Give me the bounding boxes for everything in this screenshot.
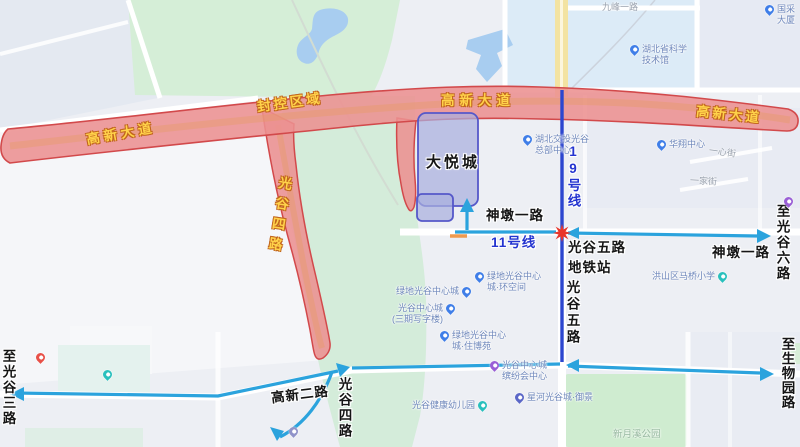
poi-label: 国采大厦 <box>777 4 800 27</box>
poi-maqiao-primary-school[interactable]: 洪山区马桥小学 <box>652 271 727 282</box>
poi-jiaotou-hq[interactable]: 湖北交投光谷 总部中心 <box>523 134 589 157</box>
jiufeng-1st-road-label: 九峰一路 <box>602 0 638 13</box>
to-guanggu-6th-label: 至光谷六路 <box>775 204 789 282</box>
poi-label: 光谷中心城 (三期写字楼) <box>392 303 443 326</box>
map-canvas[interactable]: 高新大道 封控区域 高新大道 高新大道 光谷四路 大悦城 神墩一路 光谷五路 地… <box>0 0 800 447</box>
map-pin-icon <box>521 133 534 146</box>
poi-label: 星河光谷城·御景 <box>527 392 593 403</box>
map-pin-icon <box>513 391 526 404</box>
guanggu-4th-road-label: 光谷四路 <box>337 377 351 439</box>
xinyuexi-park-label: 新月溪公园 <box>613 426 661 440</box>
map-pin-icon <box>628 43 641 56</box>
poi-guocai-building[interactable]: 国采大厦 <box>765 4 800 27</box>
poi-label: 绿地光谷中心 城·环空间 <box>487 271 541 294</box>
poi-greenland-zhuboyuan[interactable]: 绿地光谷中心 城·住博苑 <box>440 330 506 353</box>
guanggu-5th-road-label: 光谷五路 <box>565 280 579 346</box>
poi-label: 绿地光谷中心 城·住博苑 <box>452 330 506 353</box>
shendun-1st-road-label-east: 神墩一路 <box>712 243 770 263</box>
poi-label: 湖北交投光谷 总部中心 <box>535 134 589 157</box>
map-pin-icon <box>488 359 501 372</box>
yijia-street-label: 一家街 <box>690 173 718 187</box>
poi-label: 华翔中心 <box>669 139 705 150</box>
poi-label: 光谷中心城 缤纷会中心 <box>502 360 547 383</box>
to-guanggu-3rd-label: 至光谷三路 <box>1 349 15 427</box>
green-strip <box>25 428 143 447</box>
map-pin-icon <box>444 302 457 315</box>
to-biopark-road-label: 至生物园路 <box>780 337 794 410</box>
poi-label: 绿地光谷中心城 <box>396 286 459 297</box>
zone-label-gaoxin-avenue-center: 高新大道 <box>441 91 515 111</box>
poi-greenland-center-city[interactable]: 绿地光谷中心城 <box>396 286 471 297</box>
map-pin-icon <box>763 3 776 16</box>
map-pin-icon <box>460 285 473 298</box>
poi-hubei-science-museum[interactable]: 湖北省科学 技术馆 <box>630 44 687 67</box>
poi-xinghe-guanggu-city[interactable]: 星河光谷城·御景 <box>515 392 593 403</box>
poi-label: 湖北省科学 技术馆 <box>642 44 687 67</box>
poi-greenland-phase3[interactable]: 光谷中心城 (三期写字楼) <box>392 303 455 326</box>
map-pin-icon <box>716 270 729 283</box>
basemap <box>0 0 800 447</box>
map-pin-icon <box>655 138 668 151</box>
joy-city-label: 大悦城 <box>426 152 480 175</box>
map-pin-icon <box>438 329 451 342</box>
guanggu-5th-station-label: 光谷五路 地铁站 <box>568 238 626 279</box>
shendun-1st-road-label-center: 神墩一路 <box>486 206 544 226</box>
map-pin-icon <box>473 270 486 283</box>
park-area <box>128 0 400 98</box>
map-pin-icon <box>476 399 489 412</box>
poi-greenland-huan-space[interactable]: 绿地光谷中心 城·环空间 <box>475 271 541 294</box>
poi-huaxiang-center[interactable]: 华翔中心 <box>657 139 705 150</box>
poi-binfenhui-center[interactable]: 光谷中心城 缤纷会中心 <box>490 360 547 383</box>
poi-health-kindergarten[interactable]: 光谷健康幼儿园 <box>412 400 487 411</box>
poi-label: 光谷健康幼儿园 <box>412 400 475 411</box>
metro-line-11-label: 11号线 <box>491 233 536 253</box>
poi-label: 洪山区马桥小学 <box>652 271 715 282</box>
